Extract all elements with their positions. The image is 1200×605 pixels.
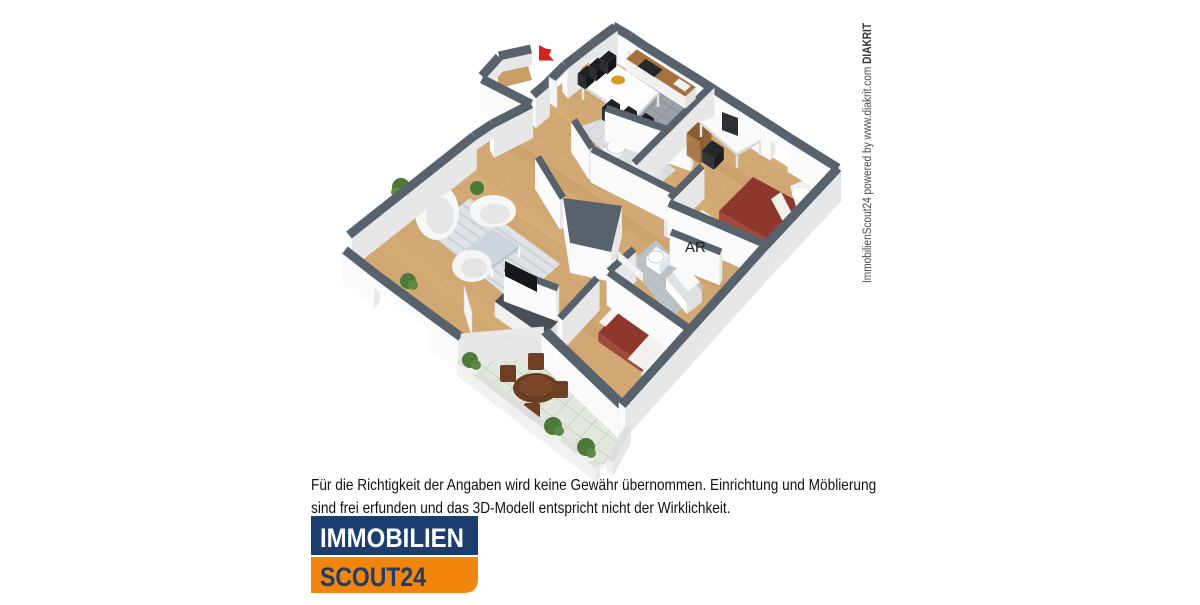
svg-text:AR: AR [685,239,706,256]
svg-text:IMMOBILIEN: IMMOBILIEN [320,523,464,553]
svg-text:SCOUT24: SCOUT24 [320,562,426,592]
svg-text:ImmobilienScout24 powered by w: ImmobilienScout24 powered by www.diakrit… [862,23,874,283]
